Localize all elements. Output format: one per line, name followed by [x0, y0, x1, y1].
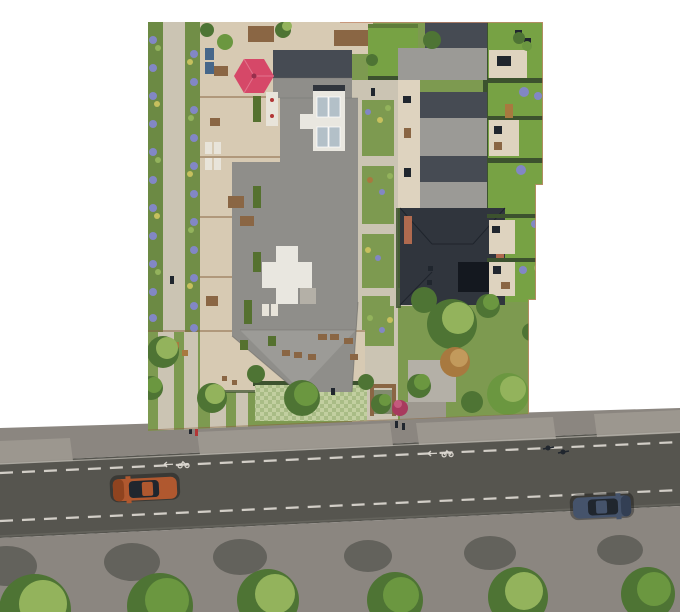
- pedestrian: [402, 423, 405, 430]
- orange-lounger: [505, 104, 513, 118]
- roof-window: [329, 97, 340, 117]
- aerial-site-plan: [0, 0, 680, 612]
- bed-flower: [375, 255, 381, 261]
- shrub: [217, 34, 233, 50]
- street-scene: [0, 408, 680, 612]
- bed-flower: [377, 117, 383, 123]
- shrub: [247, 365, 265, 383]
- garden-shrub: [513, 32, 525, 44]
- pedestrian: [170, 276, 174, 284]
- flower-cluster: [149, 120, 157, 128]
- courtyard-chair: [428, 266, 433, 271]
- tree-highlight: [414, 374, 430, 390]
- garden-flower: [519, 87, 529, 97]
- garden-patio: [489, 120, 519, 156]
- garden-table: [501, 282, 510, 289]
- lounger: [308, 354, 316, 360]
- pedestrian: [331, 388, 335, 395]
- pedestrian: [371, 88, 375, 96]
- flower-cluster: [190, 50, 198, 58]
- rowhouse-roof-dark: [420, 92, 487, 118]
- tree-highlight: [483, 294, 499, 310]
- driveway-apron: [0, 438, 73, 464]
- planter-box: [240, 340, 248, 350]
- shrub: [366, 54, 378, 66]
- planter-box: [268, 336, 276, 346]
- waste-bin: [205, 48, 214, 60]
- flower-cluster: [190, 218, 198, 226]
- copper-tree-highlight: [450, 349, 468, 367]
- flower-cluster: [149, 92, 157, 100]
- tree-highlight: [146, 377, 162, 393]
- rowhouse-roof-light: [420, 118, 487, 156]
- shrub: [155, 45, 161, 51]
- garden-dining-set: [497, 56, 511, 66]
- bed-flower: [385, 105, 391, 111]
- car-hood: [620, 495, 631, 516]
- tree-highlight: [379, 394, 391, 406]
- planter-box: [244, 300, 252, 324]
- garden-divider-hedge: [487, 258, 543, 262]
- shrub: [282, 21, 292, 31]
- bed-flower: [379, 189, 385, 195]
- skylight-box-vent: [313, 85, 345, 91]
- flower-cluster: [149, 148, 157, 156]
- kitchen-accent: [270, 98, 274, 102]
- lounger: [350, 354, 358, 360]
- terrace-table: [210, 118, 220, 126]
- car-mirror: [616, 516, 621, 519]
- patio-table: [404, 128, 411, 138]
- terrace-edging: [200, 156, 290, 158]
- roof-terrace-dining: [334, 30, 368, 46]
- flower-cluster: [149, 314, 157, 322]
- shrub: [154, 213, 160, 219]
- car-roof: [142, 482, 154, 497]
- flower-cluster: [190, 162, 198, 170]
- garden-patio: [489, 220, 515, 254]
- chair: [232, 380, 237, 385]
- flower-cluster: [190, 134, 198, 142]
- sun-lounger: [214, 158, 221, 170]
- planter-box: [253, 252, 261, 272]
- shrub: [187, 283, 193, 289]
- garden-patio: [489, 262, 515, 296]
- garden-flower: [519, 266, 527, 274]
- garden-divider-hedge: [487, 116, 543, 120]
- garden-flower: [534, 92, 542, 100]
- terrace-dining-set: [228, 196, 244, 208]
- bed-flower: [365, 109, 371, 115]
- flower-cluster: [149, 64, 157, 72]
- car-mirror: [125, 476, 130, 479]
- courtyard-chair: [427, 280, 432, 285]
- car-orange: [109, 472, 180, 504]
- garden-chair: [494, 126, 502, 134]
- garden-flower: [516, 165, 526, 175]
- street-tree-highlight: [383, 577, 419, 612]
- bed-flower: [367, 315, 373, 321]
- tree-shadow: [213, 539, 267, 575]
- flower-cluster: [190, 246, 198, 254]
- patio-chair: [404, 168, 411, 177]
- terrace-table: [214, 66, 228, 76]
- flower-cluster: [149, 288, 157, 296]
- bed-flower: [379, 327, 385, 333]
- car-blue: [569, 492, 634, 522]
- flower-cluster: [190, 190, 198, 198]
- terrace-dining-set: [240, 216, 254, 226]
- tree-shadow: [597, 535, 643, 565]
- magenta-shrub-highlight: [394, 400, 402, 408]
- rooftop-access-annex: [300, 288, 316, 304]
- roof-solar-band: [273, 50, 352, 78]
- tree: [461, 391, 483, 413]
- garden-tree: [423, 31, 441, 49]
- left-walkway: [163, 22, 185, 332]
- flower-cluster: [190, 324, 198, 332]
- flower-cluster: [190, 302, 198, 310]
- sun-lounger: [205, 158, 212, 170]
- car-roof: [596, 500, 608, 514]
- roof-terrace-dining: [248, 26, 274, 42]
- garden-shrub: [522, 41, 532, 51]
- waste-bin: [205, 62, 214, 74]
- shrub: [155, 269, 161, 275]
- flower-cluster: [149, 232, 157, 240]
- flower-cluster: [149, 36, 157, 44]
- roof-window: [329, 127, 340, 147]
- chair: [222, 376, 227, 381]
- lounger: [318, 334, 327, 340]
- roof-window: [317, 97, 328, 117]
- flower-cluster: [149, 204, 157, 212]
- cyclist: [561, 450, 566, 455]
- flower-cluster: [149, 176, 157, 184]
- sun-lounger: [262, 304, 269, 316]
- car-hood: [113, 479, 125, 501]
- plot-path: [184, 332, 198, 430]
- lounger: [294, 352, 302, 358]
- garden-divider-hedge: [487, 78, 543, 83]
- tree-highlight: [156, 337, 178, 359]
- terrace-table: [206, 296, 218, 306]
- flower-pot: [182, 350, 188, 356]
- lounger: [344, 338, 353, 344]
- rowhouse-roof-dark: [420, 156, 487, 182]
- bed-flower: [387, 173, 393, 179]
- umbrella-pole: [252, 74, 257, 79]
- outdoor-kitchen: [266, 92, 278, 126]
- tree-shadow: [464, 536, 516, 570]
- site-plan: [139, 21, 543, 432]
- bed-flower: [387, 317, 393, 323]
- car-mirror: [127, 500, 132, 503]
- rowhouse-roof-light: [420, 182, 487, 208]
- shrub: [187, 171, 193, 177]
- roof-window: [317, 127, 328, 147]
- planter-box: [253, 96, 261, 122]
- chimney: [404, 216, 412, 244]
- tree-highlight: [442, 302, 474, 334]
- bed-flower: [365, 247, 371, 253]
- shrub: [200, 23, 214, 37]
- patio-grill: [403, 96, 411, 103]
- garden-divider-hedge: [487, 214, 543, 218]
- tree-shadow: [344, 540, 392, 572]
- garden-chair: [493, 266, 501, 274]
- shrub: [187, 59, 193, 65]
- kitchen-accent: [270, 114, 274, 118]
- planter-box: [253, 186, 261, 208]
- flower-cluster: [190, 106, 198, 114]
- sun-lounger: [271, 304, 278, 316]
- street-tree-highlight: [505, 572, 543, 610]
- roof-hatch: [300, 114, 313, 129]
- shrub: [154, 101, 160, 107]
- bed-flower: [367, 177, 373, 183]
- tree-highlight: [294, 382, 318, 406]
- lounger: [282, 350, 290, 356]
- street-tree-highlight: [637, 572, 671, 606]
- rowhouse-roof-light: [398, 48, 487, 80]
- cyclist: [546, 446, 551, 451]
- car-mirror: [615, 493, 620, 496]
- flower-cluster: [149, 260, 157, 268]
- sun-lounger: [214, 142, 221, 154]
- tree-highlight: [500, 376, 526, 402]
- flower-cluster: [190, 78, 198, 86]
- shrub: [155, 157, 161, 163]
- pedestrian: [395, 421, 398, 428]
- rooftop-access-structure: [276, 246, 298, 304]
- tree-highlight: [205, 384, 225, 404]
- scene-canvas: [0, 0, 680, 612]
- garden-chair: [492, 226, 500, 233]
- lounger: [330, 334, 339, 340]
- pedestrian-red: [195, 429, 198, 436]
- shrub: [358, 374, 374, 390]
- garden-divider-hedge: [487, 158, 543, 163]
- garden-table: [494, 142, 502, 150]
- shrub: [188, 115, 194, 121]
- shrub: [188, 227, 194, 233]
- flower-cluster: [190, 274, 198, 282]
- sun-lounger: [205, 142, 212, 154]
